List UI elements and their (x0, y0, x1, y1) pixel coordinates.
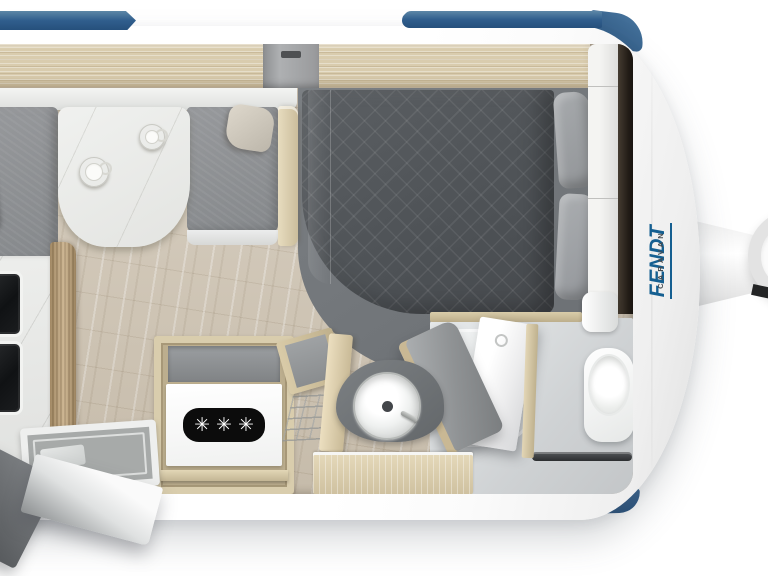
bench-side-panel (278, 106, 298, 246)
caravan-floorplan: ✳✳✳ FENDT CARAVAN (0, 0, 768, 576)
coffee-cup-icon (139, 124, 165, 150)
fridge-door: ✳✳✳ (166, 384, 282, 466)
dinette-table (58, 107, 190, 247)
fridge-shelf (160, 470, 288, 481)
freezer-stars-icon: ✳✳✳ (188, 416, 260, 435)
headboard-cabinet (588, 44, 618, 314)
hitch-coupling (751, 284, 768, 299)
washbasin-column (582, 292, 618, 332)
kitchen-drawer-front (313, 452, 473, 494)
locker-divider (263, 44, 319, 88)
hob-glass-panel (0, 274, 20, 334)
roof-accent-top-right (402, 11, 602, 28)
coffee-cup-icon (79, 157, 109, 187)
roof-accent-top-left (0, 11, 136, 30)
sink-drain (382, 401, 393, 412)
wardrobe-trim (618, 44, 633, 314)
fridge-compartment (168, 346, 280, 382)
freezer-badge: ✳✳✳ (183, 408, 265, 442)
bed-mattress (302, 90, 554, 314)
brand-subtitle: CARAVAN (656, 230, 665, 292)
cabin-interior: ✳✳✳ (0, 44, 633, 494)
dinette-bench-left (0, 107, 58, 262)
brand-logo: FENDT CARAVAN (636, 211, 682, 311)
toilet-icon (584, 348, 633, 442)
bench-front-panel (187, 230, 278, 245)
shower-rail (532, 452, 632, 461)
hob-glass-panel (0, 344, 20, 412)
